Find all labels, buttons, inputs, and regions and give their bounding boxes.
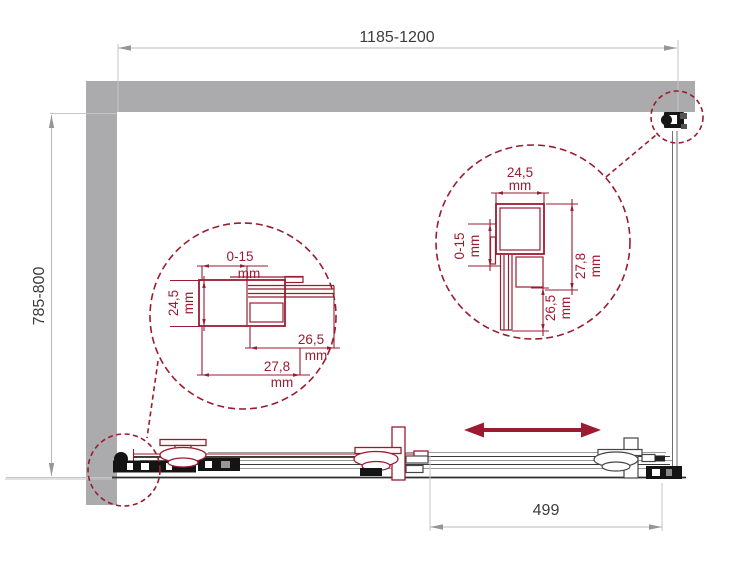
unit-label: mm <box>238 266 261 281</box>
roller-clamp <box>406 466 423 473</box>
fixed-glass-panel <box>673 131 678 466</box>
outer-width-dim-lines <box>197 327 310 375</box>
corner-bracket <box>646 466 682 479</box>
profile-block <box>198 458 240 471</box>
arrowhead-top <box>49 115 54 128</box>
roller-clamp <box>406 456 428 463</box>
inner-depth-label: 26,5 <box>543 295 558 321</box>
width-dimension-label: 1185-1200 <box>359 29 434 46</box>
roller-clamp <box>642 455 655 462</box>
roller-bracket <box>360 468 382 476</box>
width-dim-lines <box>491 193 549 204</box>
arrowhead <box>202 264 209 267</box>
arrowhead <box>570 204 573 211</box>
arrowhead-right <box>664 45 677 50</box>
outer-depth-dim-lines <box>545 199 578 295</box>
outer-width-label: 27,8 <box>264 359 290 374</box>
wall-profile-hardware-top-right <box>661 112 687 129</box>
detail-right-profile <box>491 204 545 330</box>
left-wall <box>86 112 117 505</box>
detail-left-profile <box>199 277 334 327</box>
shower-enclosure-plan: 1185-1200 785-800 <box>0 0 750 563</box>
leader-line-left <box>147 361 158 438</box>
arrowhead <box>293 373 300 376</box>
bracket-slot <box>666 469 672 476</box>
arrowhead-right <box>649 524 662 529</box>
arrowhead-left <box>118 45 131 50</box>
door-travel-label: 499 <box>533 502 560 519</box>
arrowhead <box>488 224 491 231</box>
fitting-clip <box>680 113 687 119</box>
unit-label: mm <box>181 292 196 315</box>
arrowhead-right <box>581 423 601 438</box>
profile-body <box>496 204 544 254</box>
profile-slot <box>141 463 149 470</box>
unit-label: mm <box>588 255 603 278</box>
unit-label: mm <box>509 178 532 193</box>
arrowhead <box>537 191 544 194</box>
adjust-range-label: 0-15 <box>452 232 467 259</box>
unit-label: mm <box>271 375 294 390</box>
leader-line-right <box>606 135 656 177</box>
unit-label: mm <box>305 348 328 363</box>
arrowhead-bottom <box>49 463 54 476</box>
technical-drawing-canvas: 1185-1200 785-800 <box>0 0 750 563</box>
roller-wheel <box>168 458 198 467</box>
bracket-slot <box>652 469 660 476</box>
top-wall <box>86 81 695 112</box>
profile-slot <box>221 461 230 468</box>
roller-wheel <box>602 462 630 471</box>
depth-dimension-label: 785-800 <box>31 267 48 326</box>
arrowhead <box>541 288 544 295</box>
profile-chamber <box>516 257 543 287</box>
door-roller-middle <box>354 427 428 480</box>
profile-slot <box>127 463 133 470</box>
outer-depth-label: 27,8 <box>573 253 588 279</box>
unit-label: mm <box>467 235 482 258</box>
inner-width-label: 26,5 <box>298 332 324 347</box>
fitting-knob <box>661 115 672 126</box>
arrowhead <box>202 373 209 376</box>
arrowhead-left <box>464 423 484 438</box>
roller-cap <box>160 440 206 446</box>
fitting-clip <box>681 124 687 129</box>
profile-depth-label: 24,5 <box>166 290 181 316</box>
sliding-direction-arrow <box>464 423 601 438</box>
roller-clamp <box>655 456 665 462</box>
arrowhead <box>488 259 491 266</box>
fixed-panel-roller-right <box>594 438 682 479</box>
adjust-range-label: 0-15 <box>226 249 253 264</box>
arrowhead <box>250 346 257 349</box>
glass-clamp-rails <box>501 255 513 330</box>
arrowhead <box>496 191 503 194</box>
arrowhead-left <box>430 524 443 529</box>
unit-label: mm <box>558 297 573 320</box>
profile-slot <box>205 461 212 468</box>
arrowhead <box>570 283 573 290</box>
arrowhead <box>541 324 544 331</box>
